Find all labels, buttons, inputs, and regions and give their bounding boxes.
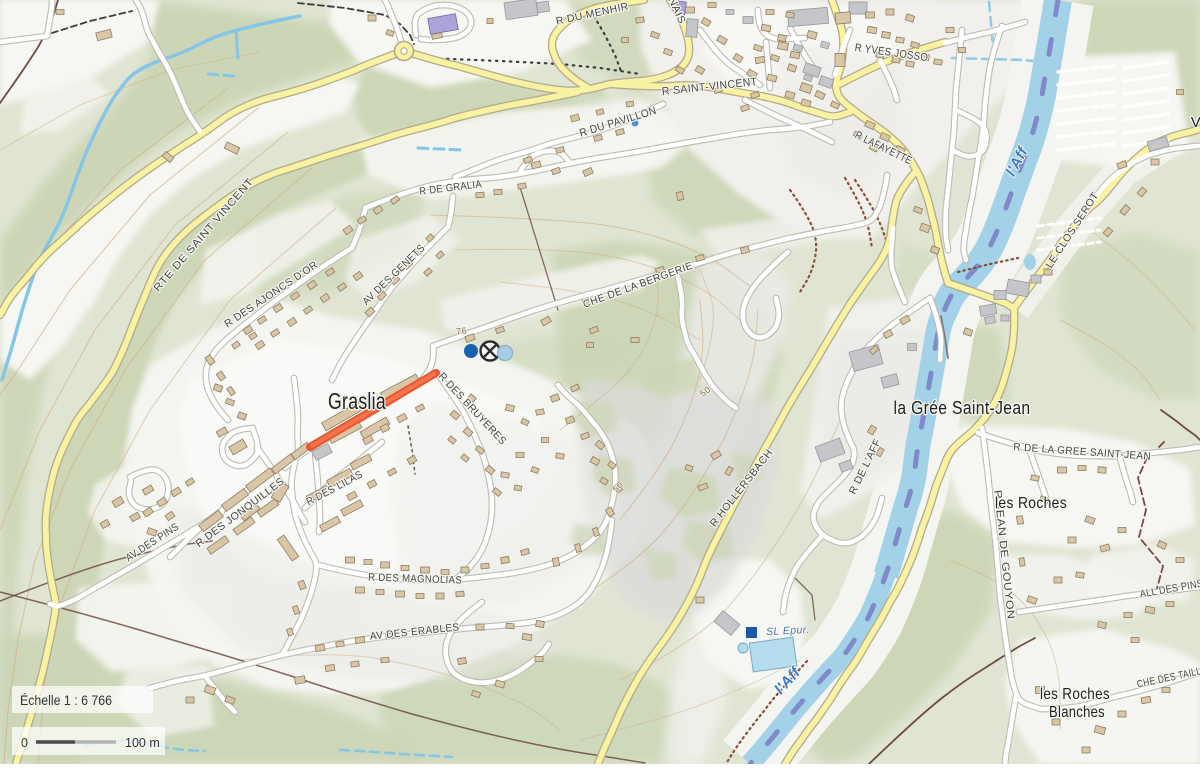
- svg-text:les Roches: les Roches: [1040, 686, 1110, 703]
- svg-text:Graslia: Graslia: [328, 388, 386, 414]
- svg-text:Échelle 1 : 6 766: Échelle 1 : 6 766: [20, 693, 112, 708]
- svg-text:76: 76: [456, 325, 468, 336]
- svg-text:la Grée Saint-Jean: la Grée Saint-Jean: [894, 398, 1031, 418]
- svg-text:les Roches: les Roches: [995, 495, 1067, 512]
- svg-text:0: 0: [21, 736, 28, 750]
- svg-text:V: V: [1191, 114, 1200, 131]
- svg-text:Blanches: Blanches: [1049, 704, 1105, 721]
- svg-text:SL Epur.: SL Epur.: [766, 624, 810, 638]
- svg-text:100 m: 100 m: [125, 736, 160, 750]
